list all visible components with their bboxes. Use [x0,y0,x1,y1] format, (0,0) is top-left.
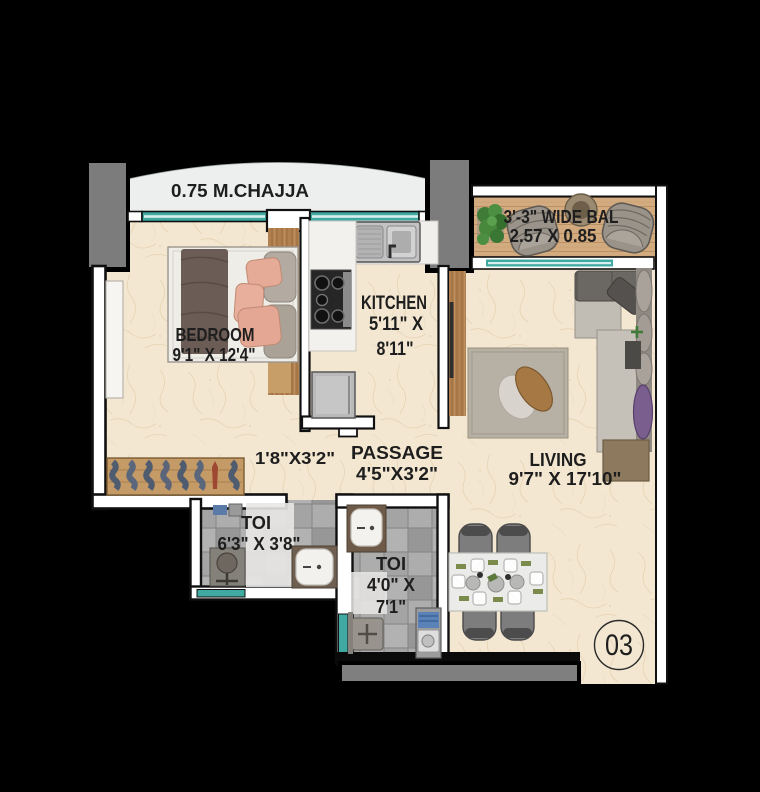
svg-text:KITCHEN: KITCHEN [361,293,427,314]
svg-text:0.75 M.CHAJJA: 0.75 M.CHAJJA [171,181,309,201]
svg-text:9'7" X 17'10": 9'7" X 17'10" [509,468,622,489]
svg-text:TOI: TOI [241,513,271,533]
svg-text:1'8"X3'2": 1'8"X3'2" [255,448,335,468]
svg-text:8'11": 8'11" [377,339,414,360]
svg-text:4'0" X: 4'0" X [367,575,415,595]
svg-text:LIVING: LIVING [530,449,587,470]
svg-text:PASSAGE: PASSAGE [351,442,443,463]
svg-text:6'3" X 3'8": 6'3" X 3'8" [218,534,301,554]
svg-text:4'5"X3'2": 4'5"X3'2" [356,463,438,484]
svg-text:03: 03 [605,629,633,662]
svg-text:TOI: TOI [376,554,406,574]
svg-text:9'1" X 12'4": 9'1" X 12'4" [173,345,256,365]
svg-text:7'1": 7'1" [376,597,406,617]
svg-text:5'11" X: 5'11" X [369,314,423,335]
svg-text:BEDROOM: BEDROOM [176,325,255,345]
svg-text:2.57 X 0.85: 2.57 X 0.85 [510,225,597,246]
svg-text:3'-3" WIDE BAL: 3'-3" WIDE BAL [504,206,619,227]
